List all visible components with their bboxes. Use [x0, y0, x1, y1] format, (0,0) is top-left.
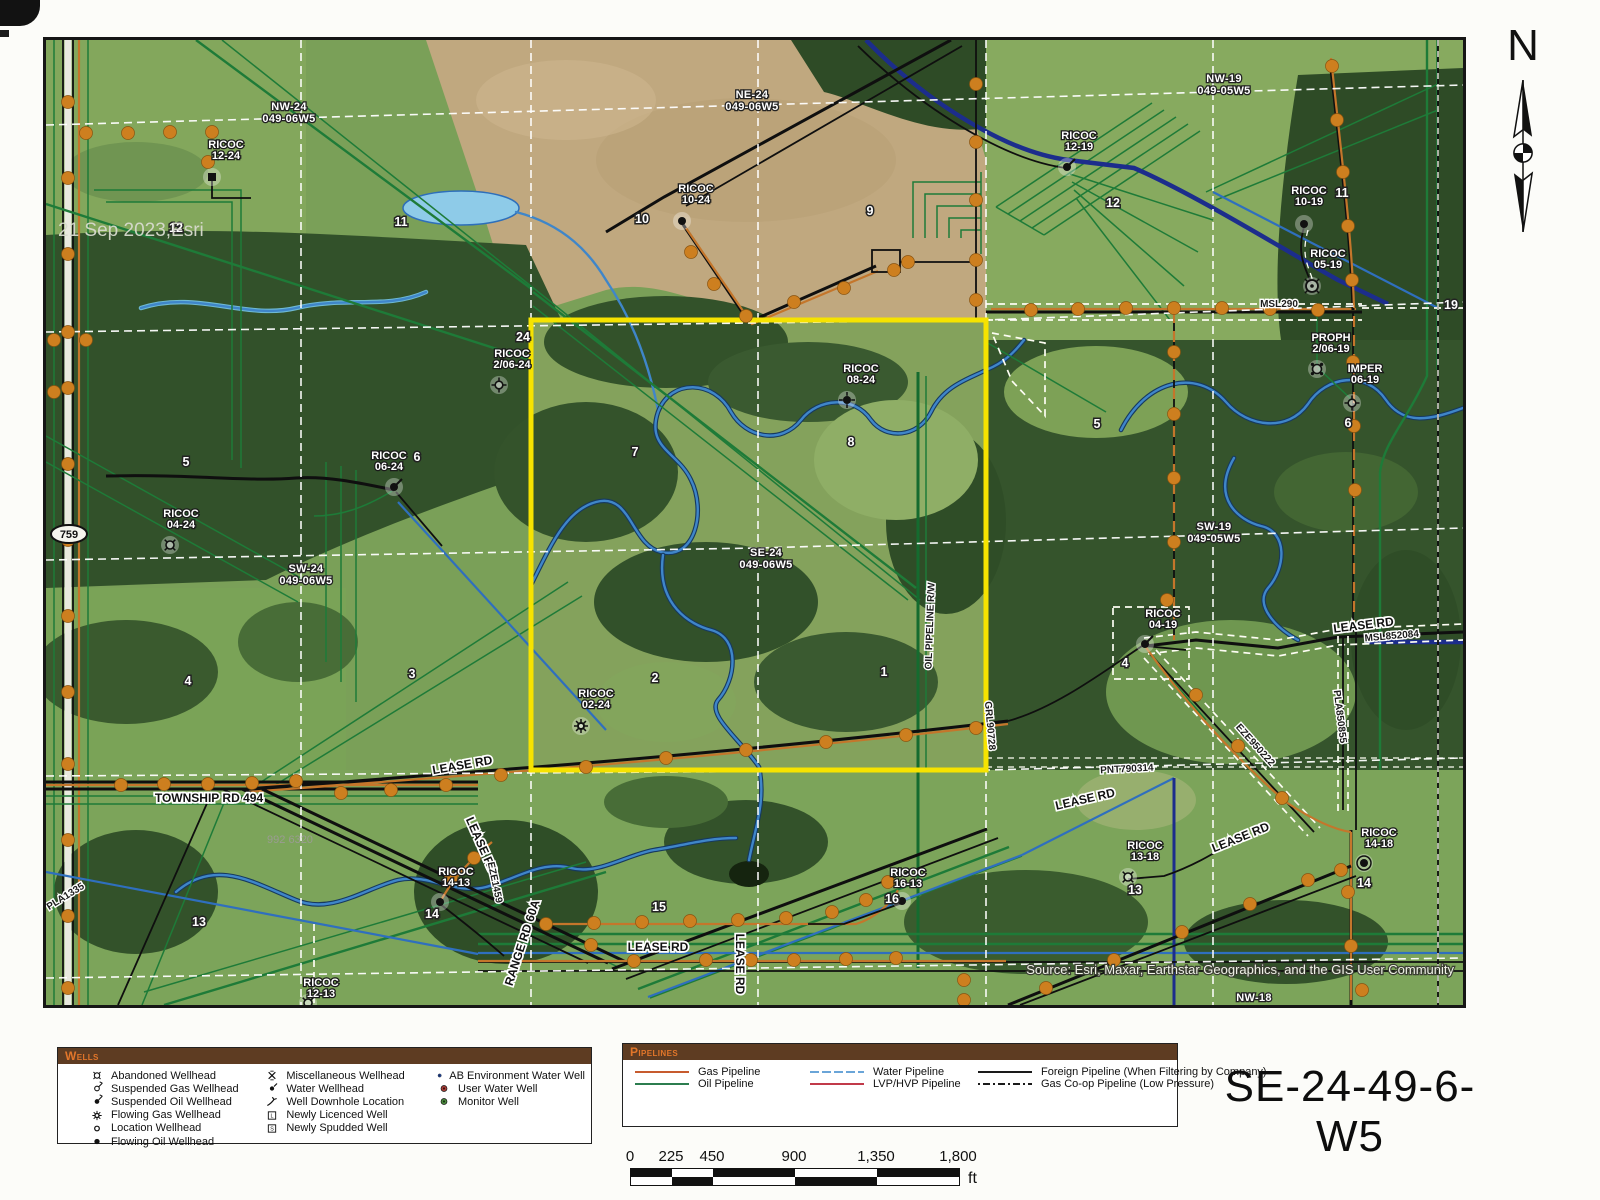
north-label: N: [1478, 24, 1568, 68]
pipeline-node: [970, 254, 983, 267]
water-wh-symbol: [270, 1084, 277, 1091]
scanned-map-page: NW-24049-06W5NE-24049-06W5NW-19049-05W5S…: [0, 0, 1600, 1200]
pipeline-node: [820, 736, 833, 749]
dot-symbol: [898, 897, 906, 905]
dot-symbol: [94, 1139, 99, 1144]
map-text-label: 10-24: [682, 194, 711, 206]
legend-well-item: Abandoned Wellhead: [88, 1069, 245, 1082]
map-text-label: MSL290: [1260, 299, 1298, 310]
pipeline-node: [970, 194, 983, 207]
map-text-label: 12: [1106, 196, 1120, 210]
map-text-label: 08-24: [847, 374, 876, 386]
pipeline-node: [1161, 594, 1174, 607]
pipeline-node: [902, 256, 915, 269]
pipeline-node: [740, 744, 753, 757]
legend-pipeline-label: Gas Co-op Pipeline (Low Pressure): [1041, 1078, 1214, 1090]
scale-bar-graphic: [630, 1168, 960, 1186]
pipeline-swatch: [976, 1080, 1034, 1088]
pipeline-node: [62, 458, 75, 471]
map-text-label: 7: [632, 445, 639, 459]
map-text-label: 10-19: [1295, 196, 1323, 208]
svg-text:L: L: [271, 1113, 274, 1119]
map-text-label: 9: [867, 204, 874, 218]
pipeline-node: [290, 775, 303, 788]
pipeline-node: [48, 386, 61, 399]
pipeline-node: [1168, 346, 1181, 359]
pipeline-node: [826, 906, 839, 919]
pipeline-node: [780, 912, 793, 925]
pipeline-node: [636, 916, 649, 929]
legend-well-item: Suspended Oil Wellhead: [88, 1095, 245, 1108]
legend-well-label: Location Wellhead: [111, 1122, 201, 1134]
map-text-label: 16-13: [894, 878, 922, 890]
pipeline-node: [62, 834, 75, 847]
pipeline-node: [1232, 740, 1245, 753]
map-text-label: SW-24: [289, 563, 324, 575]
circle-cross-lg-symbol: [1305, 279, 1319, 293]
pipeline-node: [80, 127, 93, 140]
scale-tick-label: 225: [658, 1148, 683, 1165]
legend-pipeline-item: Water Pipeline: [808, 1066, 976, 1078]
map-text-label: 049-05W5: [1197, 85, 1250, 97]
map-text-label: 10: [635, 212, 649, 226]
pipeline-swatch: [633, 1080, 691, 1088]
pipeline-node: [900, 729, 913, 742]
scale-tick-label: 1,800: [939, 1148, 977, 1165]
map-text-label: 049-06W5: [725, 101, 778, 113]
map-text-label: 13: [192, 915, 206, 929]
map-text-label: 06-24: [375, 461, 404, 473]
scale-tick-label: 0: [626, 1148, 634, 1165]
map-text-label: 049-06W5: [279, 575, 332, 587]
pipeline-node: [1244, 898, 1257, 911]
aerial-map: NW-24049-06W5NE-24049-06W5NW-19049-05W5S…: [46, 40, 1463, 1005]
pipeline-node: [158, 778, 171, 791]
legend-pipeline-item: Gas Pipeline: [633, 1066, 808, 1078]
legend-well-label: User Water Well: [458, 1083, 537, 1095]
pipeline-node: [62, 610, 75, 623]
north-arrow-icon: [1501, 70, 1545, 242]
map-text-label: 14-18: [1365, 838, 1393, 850]
map-frame: NW-24049-06W5NE-24049-06W5NW-19049-05W5S…: [43, 37, 1466, 1008]
gas-flag-symbol: [95, 1082, 103, 1091]
scan-artifact: [0, 0, 40, 26]
pipeline-node: [62, 910, 75, 923]
pipeline-node: [62, 382, 75, 395]
map-text-label: LEASE RD: [733, 934, 747, 995]
pipeline-node: [588, 917, 601, 930]
pipeline-node: [860, 894, 873, 907]
map-text-label: NW-19: [1206, 73, 1242, 85]
circle-cross-symbol: [1123, 872, 1134, 883]
map-text-label: 049-06W5: [739, 559, 792, 571]
map-text-label: 05-19: [1314, 259, 1342, 271]
legend-well-label: Newly Licenced Well: [286, 1109, 387, 1121]
pipeline-node: [1168, 408, 1181, 421]
legend-pipeline-item: Oil Pipeline: [633, 1078, 808, 1090]
pipeline-node: [62, 326, 75, 339]
legend-well-label: Well Downhole Location: [286, 1096, 404, 1108]
map-text-label: 049-05W5: [1187, 533, 1240, 545]
map-text-label: 2/06-24: [493, 359, 531, 371]
legend-well-item: Location Wellhead: [88, 1122, 245, 1135]
legend-well-item: LNewly Licenced Well: [263, 1109, 417, 1122]
pipelines-legend-body: Gas PipelineOil PipelineWater PipelineLV…: [623, 1060, 1177, 1094]
newly-lic-symbol: L: [269, 1111, 276, 1119]
pipeline-node: [495, 769, 508, 782]
pipeline-node: [202, 778, 215, 791]
map-text-label: TOWNSHIP RD 494: [155, 791, 264, 805]
legend-well-item: AB Environment Water Well: [435, 1069, 585, 1082]
pipeline-node: [115, 779, 128, 792]
pipeline-node: [1216, 302, 1229, 315]
pipeline-node: [1345, 940, 1358, 953]
map-text-label: 12-19: [1065, 141, 1093, 153]
map-text-label: 049-06W5: [262, 113, 315, 125]
pipeline-node: [890, 952, 903, 965]
oil-flag-symbol: [95, 1095, 103, 1104]
pipeline-node: [1335, 864, 1348, 877]
pipeline-node: [1349, 484, 1362, 497]
map-text-label: 6: [1345, 416, 1352, 430]
legend-well-label: Water Wellhead: [286, 1083, 364, 1095]
map-text-label: SW-19: [1197, 521, 1232, 533]
square-dot-symbol: [208, 173, 216, 181]
pipeline-node: [164, 126, 177, 139]
pipeline-node: [1302, 874, 1315, 887]
pipeline-node: [62, 172, 75, 185]
wells-legend: Wells Abandoned WellheadSuspended Gas We…: [57, 1047, 592, 1144]
map-text-label: 14: [1357, 876, 1371, 890]
scale-bar-unit: ft: [968, 1170, 977, 1188]
map-text-label: 11: [394, 215, 407, 229]
map-text-label: 6: [414, 450, 421, 464]
map-text-label: 02-24: [582, 699, 611, 711]
wells-legend-header: Wells: [58, 1048, 591, 1064]
pipelines-legend: Pipelines Gas PipelineOil PipelineWater …: [622, 1043, 1178, 1127]
map-text-label: 04-24: [167, 519, 196, 531]
map-text-label: 5: [183, 455, 190, 469]
pipeline-node: [1025, 304, 1038, 317]
pipeline-node: [1276, 792, 1289, 805]
map-text-label: Source: Esri, Maxar, Earthstar Geographi…: [1026, 962, 1454, 977]
pipeline-node: [385, 784, 398, 797]
scale-tick-label: 1,350: [857, 1148, 895, 1165]
map-text-label: 13: [1128, 883, 1142, 897]
pipeline-node: [1072, 303, 1085, 316]
north-indicator: N: [1478, 24, 1568, 242]
downhole-symbol: [268, 1098, 277, 1106]
pipeline-node: [585, 939, 598, 952]
highway-shield: 759: [51, 525, 87, 543]
map-text-label: 06-19: [1351, 374, 1379, 386]
pipeline-node: [1331, 114, 1344, 127]
pipeline-node: [62, 248, 75, 261]
newly-spud-icon: S: [263, 1121, 281, 1136]
user-water-symbol: [441, 1086, 447, 1092]
pipeline-node: [838, 282, 851, 295]
map-text-label: 2: [652, 671, 659, 685]
circle-cross-symbol: [93, 1072, 100, 1079]
pipeline-node: [1342, 220, 1355, 233]
legend-pipeline-label: Gas Pipeline: [698, 1066, 760, 1078]
pipeline-node: [1190, 689, 1203, 702]
pipeline-node: [62, 758, 75, 771]
pipeline-node: [1040, 982, 1053, 995]
pipeline-node: [62, 686, 75, 699]
map-text-label: 14-13: [442, 877, 470, 889]
map-text-label: NW-18: [1236, 992, 1272, 1004]
monitor-symbol: [441, 1099, 447, 1105]
legend-pipeline-label: Oil Pipeline: [698, 1078, 754, 1090]
pipeline-node: [440, 779, 453, 792]
map-text-label: 1: [881, 665, 888, 679]
legend-well-item: Well Downhole Location: [263, 1095, 417, 1108]
map-text-label: 4: [185, 674, 192, 688]
map-text-label: 2/06-19: [1312, 343, 1349, 355]
legend-well-item: SNewly Spudded Well: [263, 1122, 417, 1135]
map-id-title: SE-24-49-6-W5: [1195, 1062, 1505, 1162]
legend-pipeline-item: LVP/HVP Pipeline: [808, 1078, 976, 1090]
pipeline-node: [1337, 166, 1350, 179]
pipeline-node: [62, 982, 75, 995]
circle-symbol: [95, 1126, 100, 1131]
circle-rays-symbol: [574, 719, 588, 733]
pipeline-node: [1168, 536, 1181, 549]
pipeline-node: [708, 278, 721, 291]
legend-well-label: Abandoned Wellhead: [111, 1070, 216, 1082]
map-text-label: 04-19: [1149, 619, 1177, 631]
map-text-label: 4: [1122, 656, 1129, 670]
map-text-label: NW-24: [271, 101, 307, 113]
pipelines-legend-header: Pipelines: [623, 1044, 1177, 1060]
dot-symbol: [678, 217, 686, 225]
map-text-label: 16: [885, 892, 899, 906]
pipeline-node: [1326, 60, 1339, 73]
scale-tick-label: 450: [699, 1148, 724, 1165]
pipeline-node: [1356, 984, 1369, 997]
pipeline-node: [80, 334, 93, 347]
pipeline-node: [628, 955, 641, 968]
map-text-label: 19: [1444, 298, 1458, 312]
pipeline-node: [958, 974, 971, 987]
legend-well-item: User Water Well: [435, 1082, 585, 1095]
pipeline-node: [1346, 274, 1359, 287]
dot-symbol: [436, 898, 444, 906]
map-text-label: 21 Sep 2023,Esri: [58, 220, 204, 241]
svg-text:759: 759: [60, 529, 78, 541]
map-text-label: 24: [516, 330, 530, 344]
pipeline-node: [1120, 302, 1133, 315]
legend-well-item: Monitor Well: [435, 1095, 585, 1108]
pipeline-node: [1168, 472, 1181, 485]
pipeline-node: [970, 78, 983, 91]
map-text-label: SE-24: [750, 547, 783, 559]
pipeline-node: [958, 994, 971, 1006]
dot-symbol: [1300, 220, 1308, 228]
pipeline-node: [62, 96, 75, 109]
map-text-label: 3: [409, 667, 416, 681]
legend-well-label: AB Environment Water Well: [449, 1070, 585, 1082]
legend-well-label: Flowing Oil Wellhead: [111, 1136, 214, 1148]
misc-x-symbol: [269, 1071, 276, 1080]
pipeline-node: [732, 914, 745, 927]
map-text-label: 13-18: [1131, 851, 1159, 863]
circle-rays-symbol: [92, 1110, 101, 1119]
scale-bar-labels: 02254509001,3501,800: [630, 1148, 1052, 1168]
pipeline-node: [788, 954, 801, 967]
map-text-label: NE-24: [736, 89, 769, 101]
legend-well-item: Flowing Gas Wellhead: [88, 1109, 245, 1122]
map-text-label: 14: [425, 907, 439, 921]
svg-text:S: S: [271, 1126, 275, 1132]
legend-well-item: Water Wellhead: [263, 1082, 417, 1095]
dot-icon: [88, 1134, 106, 1149]
pipeline-node: [700, 954, 713, 967]
newly-spud-symbol: S: [269, 1125, 276, 1133]
legend-well-label: Newly Spudded Well: [286, 1122, 387, 1134]
scale-bar: 02254509001,3501,800 ft: [622, 1148, 1052, 1186]
legend-pipeline-label: Water Pipeline: [873, 1066, 944, 1078]
pipeline-node: [970, 722, 983, 735]
pipeline-swatch: [808, 1068, 866, 1076]
pipeline-swatch: [633, 1068, 691, 1076]
pipeline-node: [840, 953, 853, 966]
legend-well-label: Suspended Oil Wellhead: [111, 1096, 232, 1108]
pipeline-node: [685, 246, 698, 259]
legend-well-item: Flowing Oil Wellhead: [88, 1135, 245, 1148]
map-text-label: 12-24: [212, 150, 241, 162]
circle-dots-symbol: [1311, 363, 1323, 375]
pipeline-node: [684, 915, 697, 928]
map-text-label: 5: [1094, 417, 1101, 431]
ab-env-symbol: [438, 1074, 441, 1077]
map-text-label: LEASE RD: [628, 940, 689, 954]
pipeline-node: [1168, 302, 1181, 315]
wells-legend-body: Abandoned WellheadSuspended Gas Wellhead…: [58, 1064, 591, 1152]
pipeline-node: [788, 296, 801, 309]
pipeline-node: [888, 264, 901, 277]
pipeline-node: [970, 294, 983, 307]
map-text-label: 8: [848, 435, 855, 449]
legend-well-item: Suspended Gas Wellhead: [88, 1082, 245, 1095]
map-text-label: 992 6320: [267, 834, 313, 846]
pipeline-node: [122, 127, 135, 140]
legend-pipeline-label: LVP/HVP Pipeline: [873, 1078, 961, 1090]
map-text-label: 11: [1335, 186, 1348, 200]
legend-well-item: Miscellaneous Wellhead: [263, 1069, 417, 1082]
map-text-label: 12-13: [307, 988, 335, 1000]
pipeline-node: [1342, 886, 1355, 899]
pipeline-node: [246, 777, 259, 790]
pipeline-node: [1176, 926, 1189, 939]
pipeline-node: [540, 918, 553, 931]
pipeline-node: [740, 310, 753, 323]
pipeline-swatch: [976, 1068, 1034, 1076]
map-text-label: 15: [652, 900, 666, 914]
legend-well-label: Miscellaneous Wellhead: [286, 1070, 404, 1082]
pipeline-node: [335, 787, 348, 800]
scale-tick-label: 900: [781, 1148, 806, 1165]
pipeline-node: [1312, 304, 1325, 317]
pipeline-node: [48, 334, 61, 347]
circle-cross-symbol: [165, 540, 176, 551]
legend-well-label: Suspended Gas Wellhead: [111, 1083, 239, 1095]
pipeline-node: [580, 761, 593, 774]
pipeline-node: [206, 126, 219, 139]
legend-well-label: Monitor Well: [458, 1096, 519, 1108]
monitor-icon: [435, 1094, 453, 1109]
pipeline-swatch: [808, 1080, 866, 1088]
legend-well-label: Flowing Gas Wellhead: [111, 1109, 221, 1121]
pipeline-node: [660, 752, 673, 765]
pipeline-node: [970, 136, 983, 149]
